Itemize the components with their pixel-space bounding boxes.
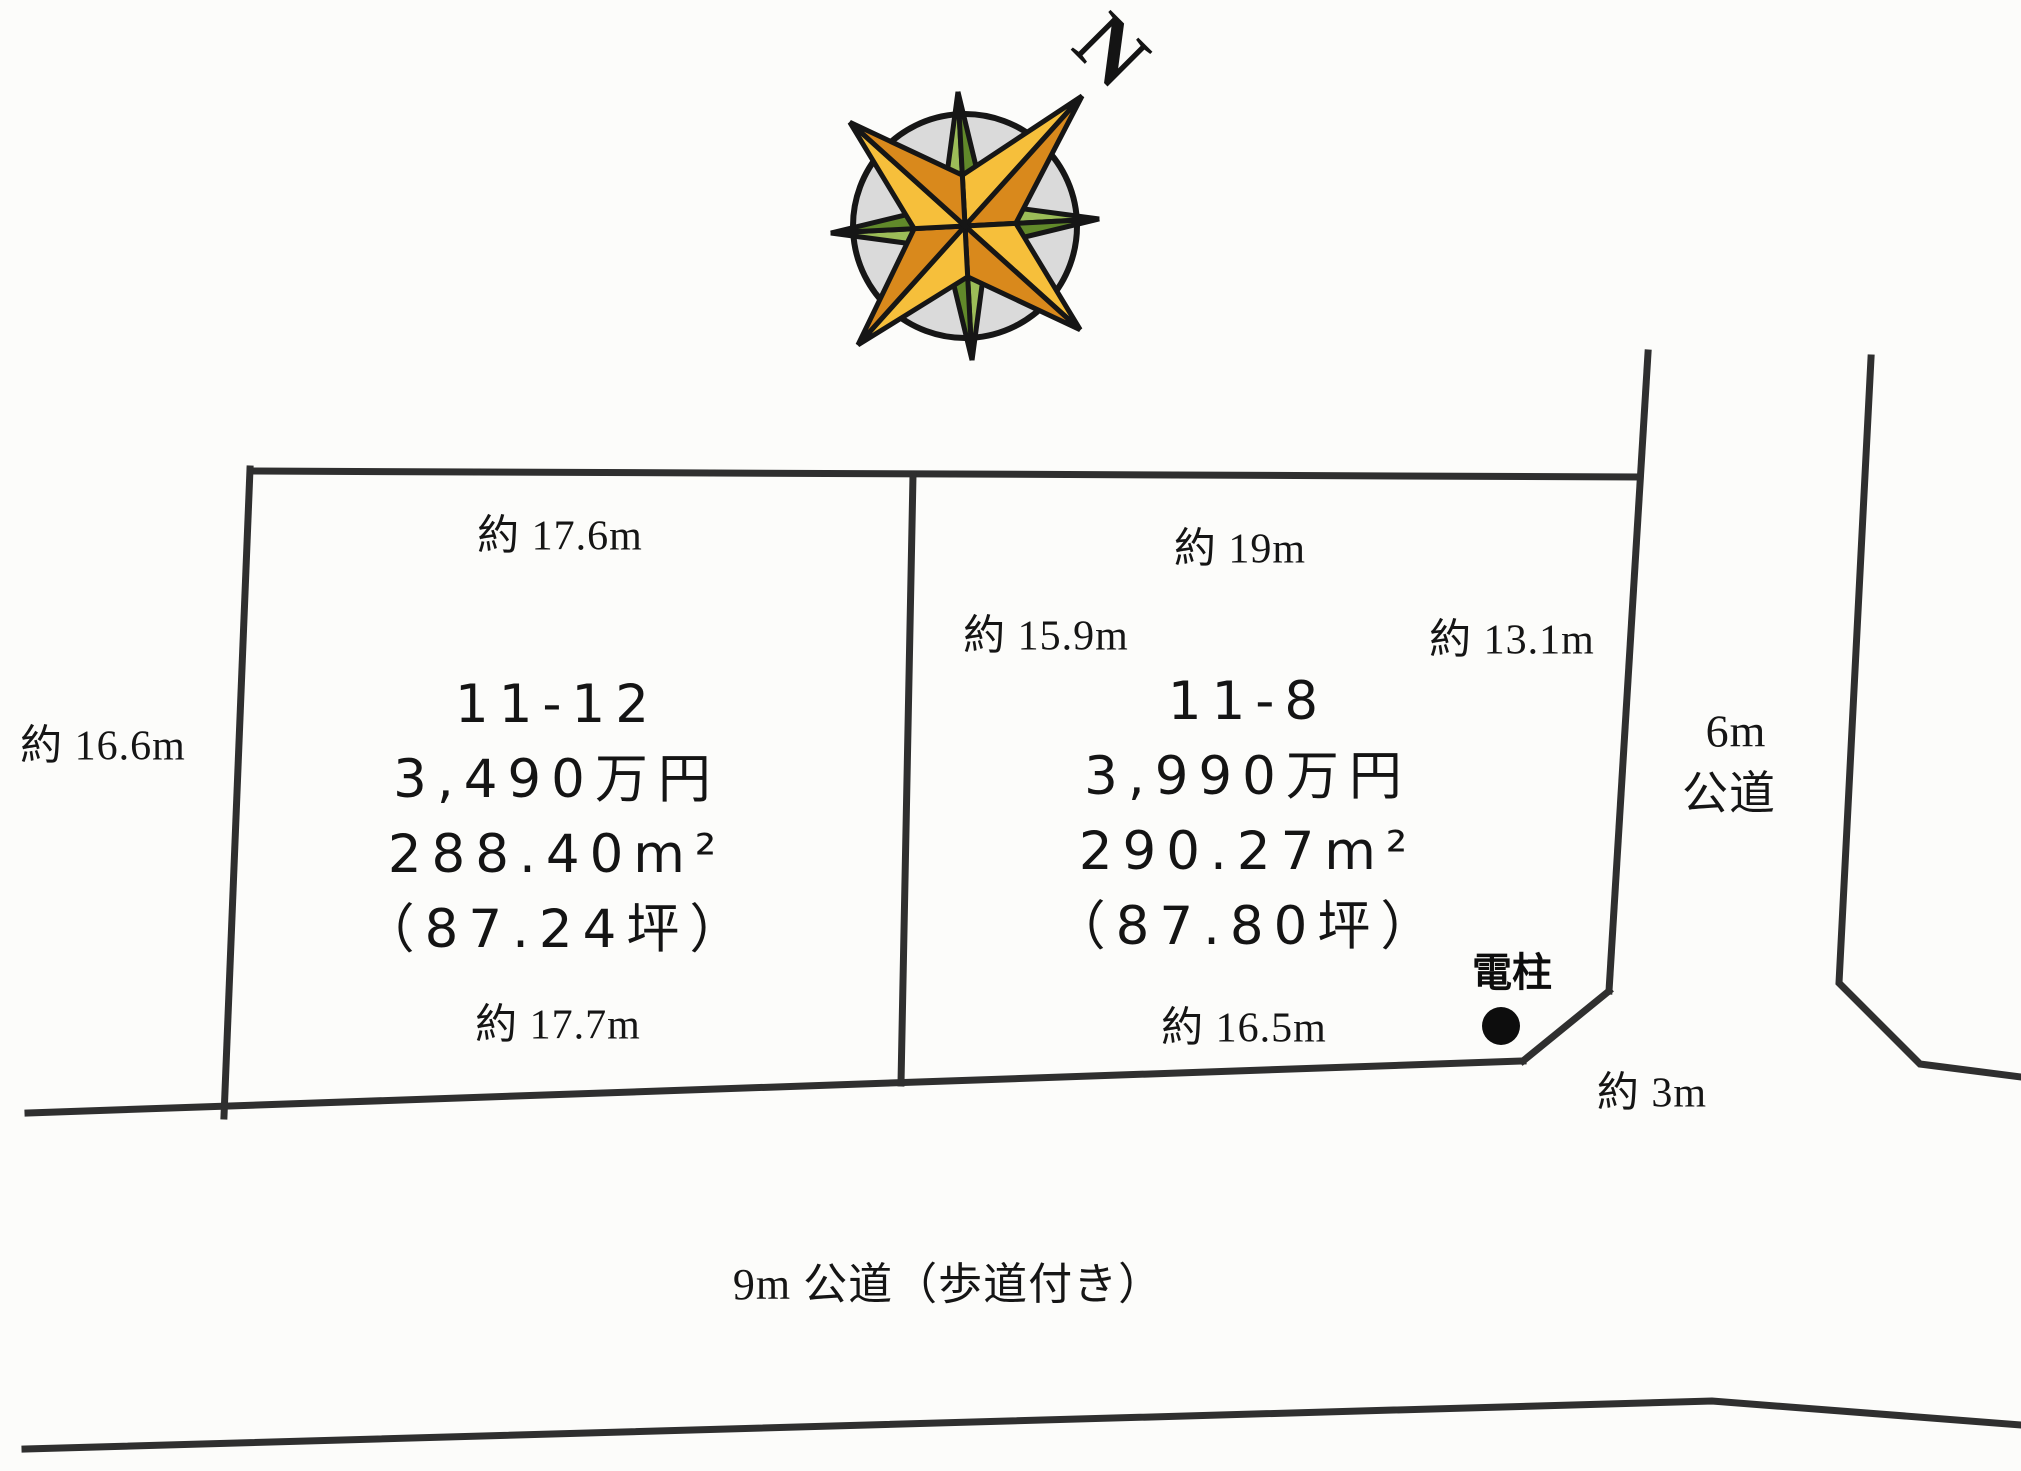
compass-north-letter: N <box>1056 0 1168 106</box>
dim-plot1-top: 約 17.6m <box>477 502 643 563</box>
compass-rose: N <box>743 0 1198 449</box>
utility-pole-label: 電柱 <box>1472 940 1552 998</box>
dim-plot2-right: 約 13.1m <box>1429 606 1595 667</box>
dim-plot2-corner: 約 3m <box>1597 1059 1707 1120</box>
plot2-info-block: 11-8 3,990万円 290.27m² （87.80坪） <box>1053 664 1444 964</box>
dim-plot1-left: 約 16.6m <box>20 712 186 773</box>
plot1-area-sqm: 288.40m² <box>362 817 753 892</box>
east-road-width-label: 6m <box>1706 705 1767 758</box>
dim-plot2-top: 約 19m <box>1174 515 1306 576</box>
plot1-info-block: 11-12 3,490万円 288.40m² （87.24坪） <box>362 667 753 967</box>
utility-pole-dot <box>1482 1007 1520 1045</box>
east-road-right-edge-line <box>1839 358 2021 1077</box>
plot2-area-sqm: 290.27m² <box>1053 814 1444 889</box>
dim-plot1-bottom: 約 17.7m <box>475 991 641 1052</box>
plot1-price: 3,490万円 <box>362 742 753 817</box>
plot2-area-tsubo: （87.80坪） <box>1053 889 1444 964</box>
south-road-label: 9m 公道（歩道付き） <box>733 1248 1163 1312</box>
dim-plot2-bottom: 約 16.5m <box>1161 994 1327 1055</box>
plot-left-boundary-line <box>224 469 250 1116</box>
plot1-lot-number: 11-12 <box>362 667 753 742</box>
east-road-type-label: 公道 <box>1682 757 1776 823</box>
plot-corner-chamfer-line <box>1523 991 1609 1061</box>
plot-top-boundary-line <box>250 471 1640 477</box>
plot-divider-line <box>901 475 913 1083</box>
plot-bottom-boundary-line <box>28 1061 1523 1113</box>
plot1-area-tsubo: （87.24坪） <box>362 892 753 967</box>
plot2-price: 3,990万円 <box>1053 739 1444 814</box>
land-plot-diagram: N 約 17.6m 約 16.6m 約 17.7m 約 19m 約 15.9m … <box>0 0 2021 1471</box>
dim-plot2-left: 約 15.9m <box>963 602 1129 663</box>
south-road-far-edge-line <box>25 1401 2021 1449</box>
east-road-left-edge-line <box>1609 353 1648 991</box>
plot2-lot-number: 11-8 <box>1053 664 1444 739</box>
